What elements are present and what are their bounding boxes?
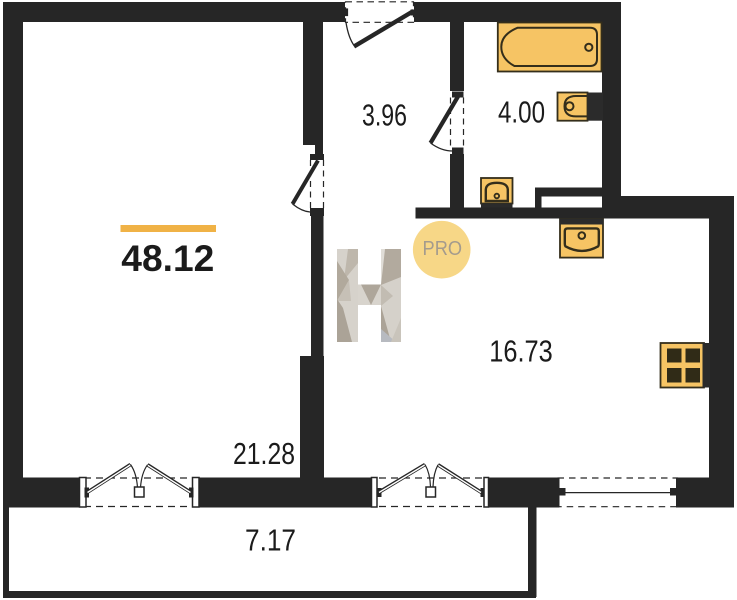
svg-text:3.96: 3.96: [362, 98, 407, 133]
svg-text:21.28: 21.28: [233, 436, 295, 471]
svg-text:7.17: 7.17: [245, 523, 296, 558]
svg-text:48.12: 48.12: [121, 238, 214, 279]
svg-text:4.00: 4.00: [498, 95, 545, 130]
svg-text:PRO: PRO: [423, 237, 463, 260]
svg-text:16.73: 16.73: [489, 334, 553, 369]
